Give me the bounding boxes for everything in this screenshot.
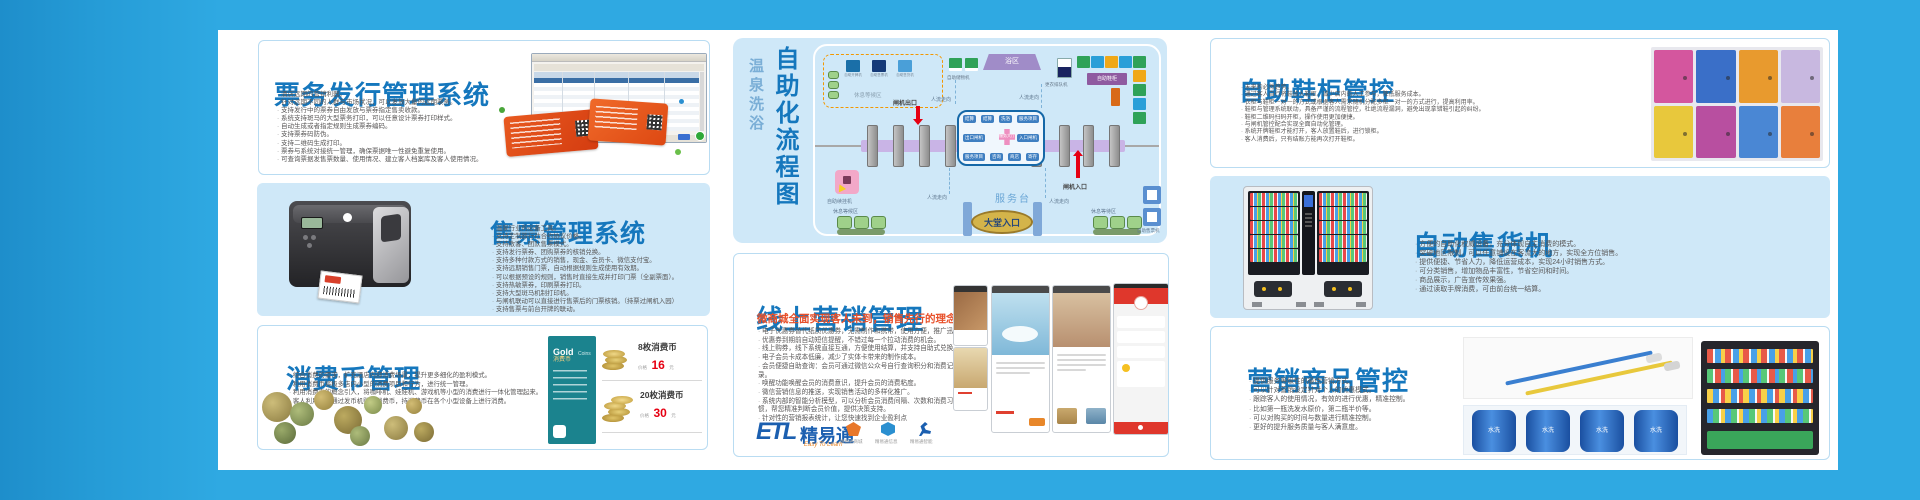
phone-screenshot [953,347,988,411]
section-ticket-sales: 售票管理系统 温泉行业的必备工具。支持定制旅行社合约协议价格。支持散客、团队售票… [257,183,710,316]
vending-bullets: 方便的自助化权威设备，充分体现自主消费的模式。突破地区限制，可以任意铺设在客流大… [1415,240,1745,294]
locker-cell [1119,56,1132,68]
kiosk-machine-icon [898,60,912,72]
queue-machine-icon [1057,58,1072,78]
app-row [1117,346,1165,358]
goods-shelf-photo [1701,341,1819,455]
service-desk-label: 服务台 [995,190,1031,205]
gold-coins-card: Gold Coins 消费币 [548,336,596,444]
bullet-item: 会员便捷自助查询：会员可通过微信公众号自行查询积分和消费记录。 [758,363,964,380]
price-value: 16 [651,358,664,372]
bullet-item: 客人消费后，只有结账方能再次打开鞋柜。 [1241,137,1606,144]
towel-rolls-photo: 水洗 水洗 水洗 水洗 [1463,405,1687,455]
gold-card-brand2: Coins [578,351,591,357]
locker-cell [1091,56,1104,68]
phone-photo-small [1057,408,1077,424]
shelf-row [1707,369,1813,383]
coin-stack-image [602,350,628,372]
bullet-item: 票券与系统对接统一管理，确保票据唯一性避免重复使用。 [277,148,527,156]
slot-dot [1262,287,1266,291]
coin [364,396,382,414]
price-label: 价格 [638,365,647,370]
bench-seat [837,216,852,229]
floorplan: 自助开牌机 自助售票机 自助售货机 休息等候区 自助储物机 浴区 更衣排队机 [813,44,1161,236]
phone-screenshot-app [1113,283,1169,435]
towel-label: 水洗 [1542,428,1554,434]
renew-machine-glyph [843,176,851,184]
towel-label: 水洗 [1488,428,1500,434]
sub-brand-cube-icon [881,422,895,436]
locker-cell [1077,56,1090,68]
section-flow-diagram: 温泉洗浴 自助化流程图 自助开牌机 自助售 [733,38,1167,243]
coin [384,416,408,440]
ticket-machine-screen [1147,212,1157,222]
storage-label: 自助储物机 [947,75,970,81]
ticket-machine-icon [1143,186,1161,204]
bench-base [1093,229,1141,235]
service-item: 商店 [1008,153,1021,161]
locker-cell [1133,70,1146,82]
ticket-text-lines [510,118,562,148]
printer-side-window [381,214,401,243]
ticket-sample [588,98,669,145]
service-item: 洗浴 [999,115,1012,123]
flow-direction-label: 人流走向 [931,96,951,103]
coin [274,422,296,444]
confetti-dot [675,149,681,155]
gate-pillar [1109,125,1120,167]
bath-zone-label: 浴区 [1005,58,1019,65]
bullet-item: 可分类销售，增加物品丰富性，节省空间和时间。 [1415,267,1745,276]
bench-seat [828,81,839,89]
ticket-machine-label: 自助售票机 [1137,228,1160,234]
kiosk-machine-icon [872,60,886,72]
ticket-issue-bullets: 酒店远期的营销利器。针对远期不同的人群与市场状况，可以发放大量的远期票务。支持发… [277,91,527,164]
bullet-item: 针对远期不同的人群与市场状况，可以发放大量的远期票务。 [277,99,527,107]
etl-tagline: Easy To Learn [804,442,842,448]
ticket-text-lines [594,106,638,133]
shoe-locker-photo [1651,47,1823,161]
bullet-item: 结合消费的需求，扩充酒店内部消费场景，提升更多细化的盈利模式。 [289,372,544,381]
phone-button [1029,418,1045,426]
bottle-row [1250,193,1298,206]
gate-exit-label: 闸机出口 [893,98,917,107]
towel-roll: 水洗 [1472,410,1516,452]
bench [1093,216,1141,236]
section-shoe-cabinet: 自助鞋柜管控 未来的必然趋势。通过客人自行将鞋放入鞋柜，减少店内的人工参与，降低… [1210,38,1830,168]
vm-foot [1314,302,1324,307]
bottle-row [1250,235,1298,248]
phone-price-line [958,392,972,394]
shoe-cabinet-bullets: 未来的必然趋势。通过客人自行将鞋放入鞋柜，减少店内的人工参与，降低服务成本。衣柜… [1241,85,1606,144]
bench-seat [1110,216,1125,229]
phone-header [1053,286,1110,293]
locker-door [1654,106,1693,159]
bullet-item: 商品展示，广告宣传效果强。 [1415,276,1745,285]
kiosk-machine-label: 自助开牌机 [840,73,866,78]
price-label: 价格 [640,413,649,418]
storage-machine-icon [965,58,978,71]
renew-machine-icon [835,170,859,194]
towel-roll: 水洗 [1526,410,1570,452]
section-merch-control: 营销商品管控 提供服务等级性的最佳营销方式。可以针对营销设定针对个人的优惠模式。… [1210,326,1830,460]
locker-door [1696,106,1735,159]
shelf-row [1707,409,1813,423]
phone-photo-small [1086,408,1106,424]
ticket-sample [503,109,598,157]
flow-subtitle: 温泉洗浴 [745,58,766,134]
app-bottom-dot [1138,425,1143,430]
price-divider [602,380,702,381]
phone-photo [954,292,987,330]
vm-foot [1296,302,1306,307]
locker-door [1696,50,1735,103]
service-item: 服务项目 [963,153,985,161]
sub-brand-caption: 精易通信息 [875,439,898,445]
bottle-row [1250,249,1298,262]
locker-cell [1133,56,1146,68]
label-red-stamp [324,275,341,284]
etl-logo-text: ETL [756,418,795,446]
price-divider [602,432,702,433]
price-value: 30 [653,406,666,420]
gate-pillar [945,125,956,167]
bullet-item: 支持远期销售门票，自动根据规则生成使用有效期。 [492,265,702,273]
bullet-item: 温泉行业的必备工具。 [492,225,702,233]
confetti-dot [499,107,505,113]
coin-stack-image [602,398,632,424]
bottle-row [1319,193,1367,206]
renew-machine-flash [836,183,846,193]
bullet-item: 方便的自助化权威设备，充分体现自主消费的模式。 [1415,240,1745,249]
phone-text-line [996,362,1045,364]
service-item: 出口闸机 [963,134,985,142]
printed-label [317,271,362,304]
confetti-dot [679,99,684,104]
coin [350,426,370,446]
phone-header [992,286,1049,293]
toothbrush-head [1663,360,1680,371]
amenity-kit-photo [1463,337,1693,399]
bench-seat [828,71,839,79]
coin-price-qty: 8枚消费币 [638,341,677,353]
service-item: 服务项目 [1017,115,1039,123]
phone-text-line [1057,369,1086,371]
kiosk-machine-label: 自助售货机 [892,73,918,78]
bullet-item: 电子会员卡成本低廉，减少了实体卡带来的制作成本。 [758,354,964,363]
online-marketing-bullets: 电子优惠券替代纸质优惠券，无需制作和携带，使用方便，推广迅速优惠券到期前自动短信… [758,328,964,424]
ticket-machine-screen [1147,190,1157,200]
printer-screen [301,217,323,229]
vm-dispense-slot [1324,281,1362,297]
section-online-marketing: 线上营销管理 微商城全面实现客人未到，销售先行的理念 电子优惠券替代纸质优惠券，… [733,253,1169,457]
flow-direction-label: 人流走向 [1019,94,1039,101]
printer-button [311,235,316,240]
locker-cell-tall [1111,88,1120,106]
coin [262,392,292,422]
bench [837,216,885,236]
towel-roll: 水洗 [1634,410,1678,452]
printer-button [307,243,312,248]
price-unit: 元 [669,365,674,370]
bottle-row [1319,235,1367,248]
bullet-item: 唤醒功能唤醒会员的消费意识，提升会员的消费粘度。 [758,380,964,389]
printer-logo-dot [343,213,352,222]
coin [406,398,422,414]
bullet-item: 支持二维码生成打印。 [277,140,527,148]
gate-entrance-label: 闸机入口 [1063,182,1087,191]
towel-roll: 水洗 [1580,410,1624,452]
app-row [1117,331,1165,343]
shelf-row [1707,389,1813,403]
gate-pillar [893,125,904,167]
service-item: 寄存 [1026,153,1039,161]
ok-button [678,134,690,140]
ticket-machine-icon [1143,208,1161,226]
section-vending-machine: 自动售货机 方便的自助化权威设备，充分体现自主消费的模式。突破地区限制，可以任意… [1210,176,1830,318]
flow-direction-label: 人流走向 [927,194,947,201]
towel-label: 水洗 [1650,428,1662,434]
storage-machine-icon [949,58,962,71]
bullet-item: 系统内部的智能分析模型，可以分析会员消费间隔、次数和消费习惯，帮您精准判断会员价… [758,398,964,415]
bullet-item: 鞋柜二维码扫码开柜，操作使用更加便捷。 [1241,115,1606,122]
bullet-item: 可以根据预设的规则，销售时直接生成并打印门票（全副票面）。 [492,274,702,282]
renew-machine-label: 自助续挂机 [827,198,852,205]
rest-left-label: 休息等候区 [833,208,858,215]
bullet-item: 线上购券，线下系统直接互通，方便使用结算，并支持自助式兑换。 [758,345,964,354]
bench-base [837,229,885,235]
phone-text-line [996,372,1030,374]
vm-dispense-slot [1254,281,1292,297]
kiosk-machine-label: 自助售票机 [866,73,892,78]
bullet-item: 支持热敏票券，印刷票券打印。 [492,282,702,290]
label-barcode [323,286,356,298]
bottle-row [1319,221,1367,234]
vm-control-column [1302,191,1315,275]
lobby-entrance: 大堂入口 [971,210,1033,234]
vm-left-door [1248,191,1300,275]
towel-label: 水洗 [1596,428,1608,434]
label-printer-photo [285,195,435,307]
service-item: 结算 [981,115,994,123]
bath-zone: 浴区 [983,54,1041,70]
coin [302,420,328,446]
shoe-cabinet-label: 自助鞋柜 [1097,76,1117,82]
bullet-item: 可查询票据发售票数量、使用情况、建立客人档案库及客人使用情况。 [277,156,527,164]
locker-door [1739,50,1778,103]
phone-text-line [996,367,1045,369]
slot-dot [1332,287,1336,291]
bullet-item: 比如第一瓶洗发水原价，第二瓶半价等。 [1249,405,1484,414]
locker-door [1654,50,1693,103]
bullet-item: 系统开牌鞋柜才能打开，客人放置鞋后，进行锁柜。 [1241,129,1606,136]
app-avatar [1134,296,1148,310]
vm-foot [1252,302,1262,307]
bench-seat [1093,216,1108,229]
bullet-item: 突破地区限制，可以任意铺设在客流大的地方，实现全方位销售。 [1415,249,1745,258]
bullet-item: 支持大型斑马机制打印机。 [492,290,702,298]
bullet-item: 电子优惠券替代纸质优惠券，无需制作和携带，使用方便，推广迅速 [758,328,964,337]
waiting-area-label: 休息等候区 [854,91,882,99]
window-titlebar [532,54,706,62]
window-scrollbar [700,72,704,131]
sub-brand-caption: 精易通商城 [840,439,863,445]
coin-price-row: 8枚消费币 价格 16 元 [602,338,704,384]
bullet-item: 支持票券码防伪。 [277,131,527,139]
sub-brand-robot-icon [916,422,931,436]
price-unit: 元 [671,413,676,418]
locker-door [1781,50,1820,103]
bullet-item: 通过读取手牌消费，可由前台统一结算。 [1415,285,1745,294]
bench-seat [854,216,869,229]
ticket-sales-bullets: 温泉行业的必备工具。支持定制旅行社合约协议价格。支持散客、团队售票模式。支持发行… [492,225,702,314]
bottle-row [1250,207,1298,220]
bullet-item: 可以针对营销设定针对个人的优惠模式。 [1249,386,1484,395]
waiting-area-box: 自助开牌机 自助售票机 自助售货机 休息等候区 [823,54,943,108]
shelf-bottom-panel [1707,431,1813,449]
vm-keypad [1305,213,1312,227]
service-item: 咨询 [990,153,1003,161]
bullet-item: 通过客人自行将鞋放入鞋柜，减少店内的人工参与，降低服务成本。 [1241,92,1606,99]
coin-price-row: 20枚消费币 价格 30 元 [602,386,704,436]
gold-card-text-lines [553,370,587,404]
coins-photo [258,384,473,450]
service-item: 结算 [963,115,976,123]
bottle-row [1319,207,1367,220]
bullet-item: 微信营销信息的推送，实现销售活动的多样化推广。 [758,389,964,398]
slot-dot [1278,287,1282,291]
gate-entrance-arrow [1076,156,1080,178]
gate-pillar [919,125,930,167]
sub-brand-caption: 精易通智能 [910,439,933,445]
phone-screenshot [953,285,988,346]
window-toolbar [534,64,704,71]
locker-door [1781,106,1820,159]
phone-text-line [1057,354,1106,356]
phone-photo [1053,293,1110,347]
bullet-item: 提供服务等级性的最佳营销方式。 [1249,377,1484,386]
app-row [1117,316,1165,328]
gate-exit-arrow [916,106,920,119]
coin-ellipse [603,350,625,358]
service-hall-label: 服务大厅 [999,133,1015,139]
service-item: 入口闸机 [1017,134,1039,142]
flow-guide [949,168,950,194]
phone-text-line [1057,359,1106,361]
phone-photo [954,348,987,388]
shelf-row [1707,349,1813,363]
printer-button [303,235,308,240]
lobby-entrance-label: 大堂入口 [984,218,1020,228]
flow-guide [1041,84,1042,108]
bullet-item: 鞋柜与管理系统联动，具备严谨的流程管控，杜绝流程漏洞，避免出现拿错鞋引起的纠纷。 [1241,107,1606,114]
service-box: 结算 结算 洗浴 服务项目 出口闸机 服务大厅 入口闸机 服务项目 咨询 商店 … [957,110,1045,166]
bullet-item: 跟踪客人的使用情况，有效的进行优惠，精准控制。 [1249,395,1484,404]
gate-exit-arrow-head [913,119,923,125]
coin [414,422,434,442]
locker-door [1739,106,1778,159]
flow-guide [955,80,956,104]
locker-cell [1133,98,1146,110]
bullet-item: 与闸机联动可以直接进行售票后的门票核销。（持票过闸机入园） [492,298,702,306]
section-ticket-issue: 票务发行管理系统 酒店远期的营销利器。针对远期不同的人群与市场状况，可以发放大量… [258,40,710,175]
gate-pillar [867,125,878,167]
phone-text-line [1057,364,1106,366]
bench-seat [871,216,886,229]
flow-direction-label: 人流走向 [1049,198,1069,205]
kiosk-machine-icon [846,60,860,72]
bullet-item: 更好的提升服务质量与客人满意度。 [1249,423,1484,432]
gate-pillar [1083,125,1094,167]
gate-pillar [1059,125,1070,167]
locker-cell [1133,112,1146,124]
vm-foot [1356,302,1366,307]
bench-seat [828,91,839,99]
online-marketing-subtitle: 微商城全面实现客人未到，销售先行的理念 [757,311,957,326]
bullet-item: 支持定制旅行社合约协议价格。 [492,233,702,241]
flow-title: 自助化流程图 [767,46,802,208]
section-coin-management: 消费币管理 结合消费的需求，扩充酒店内部消费场景，提升更多细化的盈利模式。利用消… [257,325,708,450]
phone-screenshot [1052,285,1111,433]
gold-card-logo [553,425,566,438]
vending-machine-photo [1243,186,1373,310]
locker-cell [1133,84,1146,96]
bullet-item: 支持售票与前台开牌的联动。 [492,306,702,314]
bottle-row [1250,221,1298,234]
bottle-row [1319,249,1367,262]
bullet-item: 提供便捷、节省人力，降低运营成本，实现24小时销售方式。 [1415,258,1745,267]
phone-screenshot [991,285,1050,433]
bullet-item: 可以对购买的时间与数量进行精准控制。 [1249,414,1484,423]
coin-price-qty: 20枚消费币 [640,389,683,401]
bath-tub-shape [1002,326,1038,342]
gold-card-name: 消费币 [553,354,571,363]
app-badge [1122,364,1130,372]
qr-code [647,114,663,130]
slot-dot [1348,287,1352,291]
phone-photo [992,293,1049,355]
rest-right-label: 休息等待区 [1091,208,1116,215]
vm-right-door [1317,191,1369,275]
shoe-cabinet-label-box: 自助鞋柜 [1087,73,1127,85]
status-green-dot [695,131,705,141]
phone-price-line [996,411,1014,414]
flow-guide [1045,168,1046,198]
brochure-canvas: 票务发行管理系统 酒店远期的营销利器。针对远期不同的人群与市场状况，可以发放大量… [0,0,1920,500]
lobby-pillar [1033,202,1042,236]
coin-ellipse [611,396,633,404]
queue-machine-label: 更衣排队机 [1045,82,1068,88]
bullet-item: 酒店远期的营销利器。 [277,91,527,99]
merch-bullets: 提供服务等级性的最佳营销方式。可以针对营销设定针对个人的优惠模式。跟踪客人的使用… [1249,377,1484,432]
coin [314,390,334,410]
locker-cell [1105,56,1118,68]
vm-screen [1304,195,1313,207]
